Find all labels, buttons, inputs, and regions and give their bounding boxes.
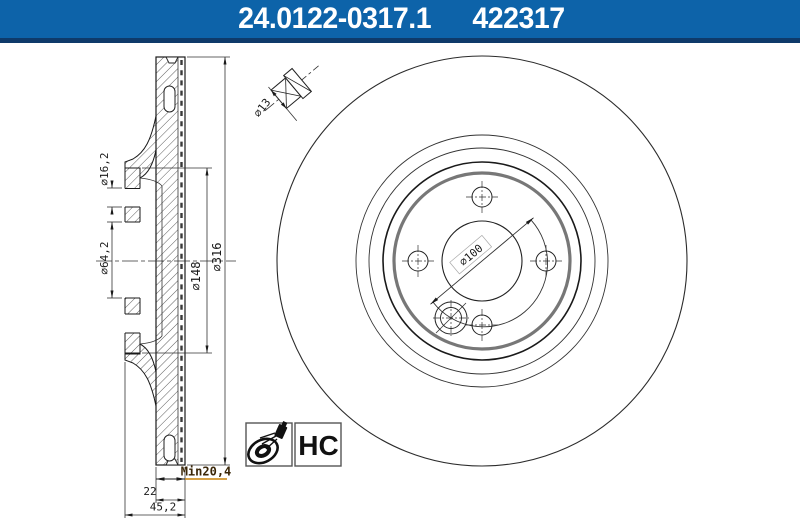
locating-pin-hole xyxy=(433,300,469,336)
section-view: ⌀316 ⌀148 ⌀64,2 ⌀16,2 xyxy=(96,57,236,518)
dim-bolt-circle-labelbox: ⌀100 xyxy=(450,235,492,273)
drawing-canvas: ⌀316 ⌀148 ⌀64,2 ⌀16,2 xyxy=(0,0,800,520)
front-view: ⌀100 xyxy=(277,56,687,466)
hc-badge-label: HC xyxy=(298,430,338,461)
dim-bolt-circle-line xyxy=(431,218,534,304)
dim-thickness-label: 22 xyxy=(143,485,156,498)
coating-badges: HC xyxy=(244,420,341,468)
dim-hat-diameter-label: ⌀148 xyxy=(189,262,203,291)
dim-outer-diameter-label: ⌀316 xyxy=(210,243,224,272)
vent-slot-top xyxy=(164,86,175,112)
dim-wheel-bolt-hole-label: ⌀13 xyxy=(251,96,273,120)
dim-total-width-label: 45,2 xyxy=(150,501,177,514)
dim-bore-diameter-label: ⌀64,2 xyxy=(98,241,111,274)
dim-bolt-hole-diameter-label: ⌀16,2 xyxy=(98,152,111,185)
bolt-detail-view: ⌀13 xyxy=(251,54,337,133)
vent-slot-bottom xyxy=(164,435,175,461)
brake-disc-technical-drawing: 24.0122-0317.1 422317 xyxy=(0,0,800,520)
dim-bolt-hole-diameter xyxy=(107,182,122,214)
dim-min-thickness-label: Min20,4 xyxy=(181,465,232,479)
